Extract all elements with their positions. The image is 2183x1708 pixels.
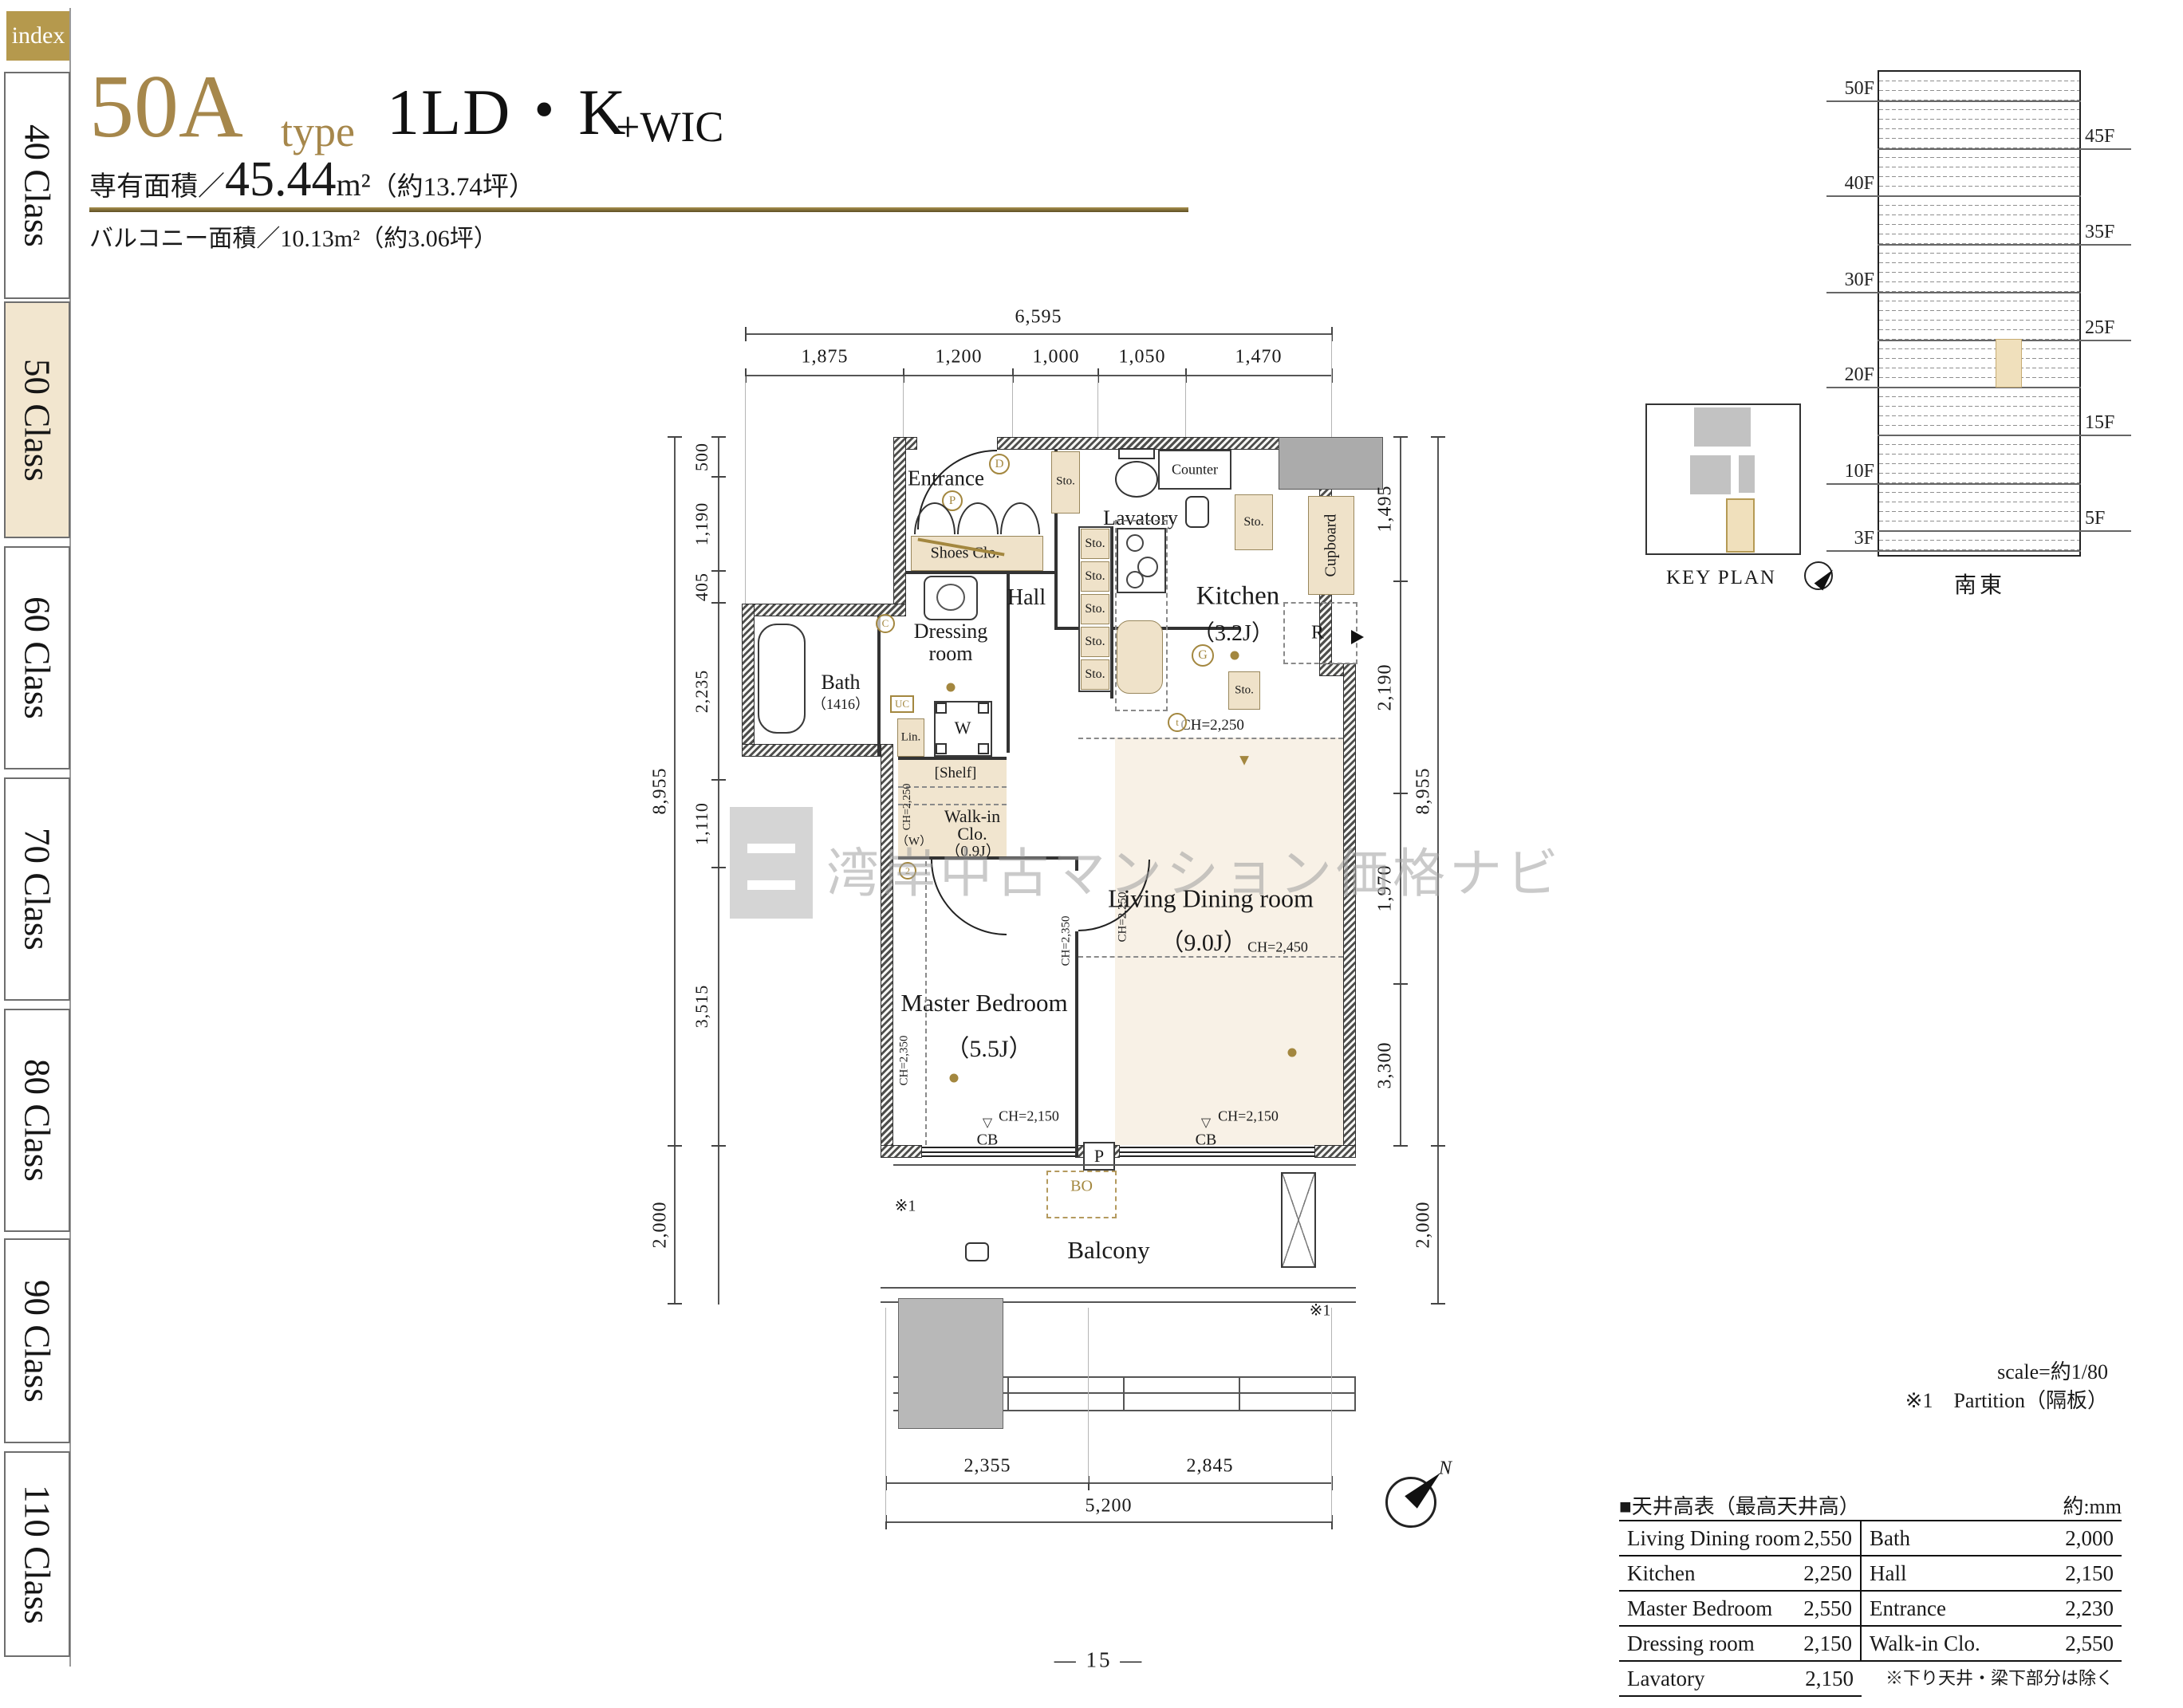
ch-2150-right: CH=2,150 [1218, 1108, 1279, 1125]
dim-left-inner-line [718, 437, 719, 1305]
dim-bottom-1: 2,355 [964, 1456, 1011, 1478]
partition-bedroom-living [1075, 931, 1078, 1158]
dim-left-outer-line [674, 437, 676, 1305]
room-size-wic: （0.9J） [945, 840, 1000, 861]
symbol-2-circle-a: 2 [899, 862, 916, 880]
dim-bottom-seg-line [886, 1482, 1332, 1484]
table-row-1: Living Dining room2,550 Bath2,000 [1619, 1520, 2122, 1555]
bedroom-dot [950, 1074, 959, 1083]
hall-sto-5-label: Sto. [1085, 667, 1105, 682]
cb-label-right: CB [1196, 1131, 1217, 1150]
room-label-balcony: Balcony [1067, 1236, 1149, 1265]
cupboard-label: Cupboard [1322, 514, 1341, 577]
cb-label-left: CB [977, 1131, 999, 1150]
living-vent-triangle: ▼ [1236, 752, 1252, 770]
partition-mark-left: ※1 [895, 1196, 916, 1216]
wic-ch-label: CH=2,250 [901, 784, 914, 831]
room-size-living: （9.0J） [1160, 923, 1247, 958]
window-living [1120, 1147, 1314, 1157]
balcony-sill [893, 1164, 1356, 1166]
symbol-c-circle: C [876, 614, 895, 633]
room-label-bath: Bath [821, 671, 860, 695]
washer-pan-corner-4 [978, 743, 989, 754]
bedroom-ch-right: CH=2,350 [1060, 915, 1074, 966]
partition-note: ※1 Partition（隔板） [1905, 1384, 2108, 1414]
toilet [1115, 461, 1158, 498]
linen-label: Lin. [901, 731, 921, 745]
washstand-basin [936, 584, 965, 611]
partition-mark-right: ※1 [1310, 1301, 1331, 1320]
cb-triangle-left: ▽ [983, 1115, 992, 1131]
living-dot [1288, 1049, 1297, 1057]
ceiling-height-table: ■天井高表（最高天井高） 約:mm Living Dining room2,55… [1619, 1494, 2122, 1697]
bedroom-closet-dashed [925, 861, 927, 1145]
floor-plan: Entrance P D Shoes Clo. Lavatory Sto. Co… [0, 0, 2183, 1708]
dim-right-2: 2,190 [1375, 664, 1397, 711]
washer-label: W [955, 718, 971, 738]
living-ch-top: CH=2,250 [1177, 717, 1247, 734]
dim-bottom-total: 5,200 [1086, 1496, 1133, 1517]
room-label-kitchen: Kitchen [1196, 582, 1279, 612]
symbol-g-circle: G [1192, 644, 1214, 667]
closet-door-arc-3 [1000, 502, 1040, 534]
stove-burner-3 [1126, 571, 1144, 588]
dim-top-seg-line [746, 375, 1332, 376]
washer-pan-corner-2 [978, 702, 989, 714]
room-size-kitchen: （3.2J） [1192, 616, 1274, 647]
balcony-drain [965, 1242, 989, 1261]
pipe-shaft [1279, 437, 1383, 490]
wall-bath-left [742, 604, 755, 757]
washer-pan-corner-3 [936, 743, 947, 754]
wall-west [881, 744, 893, 1158]
room-size-bath: （1416） [812, 693, 869, 714]
dim-left-2: 1,190 [692, 502, 712, 546]
dim-left-5: 1,110 [692, 802, 712, 845]
table-row-5: Lavatory2,150 ※下り天井・梁下部分は除く [1619, 1660, 2122, 1697]
dim-bottom-total-line [886, 1521, 1332, 1523]
bedroom-ch-left: CH=2,350 [898, 1035, 912, 1085]
wic-shelf-line-2 [898, 804, 1007, 805]
dim-bottom-2: 2,845 [1187, 1456, 1234, 1478]
dim-top-total: 6,595 [1015, 307, 1062, 329]
wic-w-label: （W） [896, 832, 932, 849]
living-ch-2450: CH=2,450 [1247, 939, 1308, 956]
lavatory-basin [1185, 496, 1209, 528]
dim-right-4: 3,300 [1375, 1042, 1397, 1089]
vent-arrow [1351, 630, 1364, 644]
wall-east [1343, 663, 1356, 1158]
wic-shelf-label: [Shelf] [935, 765, 977, 782]
kitchen-storage-label: Sto. [1235, 684, 1254, 698]
dim-right-outer-2: 2,000 [1413, 1202, 1435, 1249]
brochure-page: { "sidebar": { "index": "index", "tabs":… [0, 0, 2183, 1708]
uc-label: UC [895, 698, 909, 710]
bathtub [758, 624, 806, 734]
living-inner-dashed [1078, 956, 1343, 958]
dim-left-outer-1: 8,955 [650, 768, 672, 815]
dim-top-3: 1,000 [1033, 347, 1080, 368]
dim-top-2: 1,200 [936, 347, 983, 368]
balcony-gray-block [898, 1298, 1003, 1429]
table-row-4: Dressing room2,150 Walk-in Clo.2,550 [1619, 1625, 2122, 1660]
table-row-3: Master Bedroom2,550 Entrance2,230 [1619, 1590, 2122, 1625]
compass-n-label: N [1439, 1458, 1452, 1480]
room-label-dressing-1: Dressing [914, 620, 987, 643]
room-size-bedroom: （5.5J） [945, 1029, 1032, 1064]
table-title: ■天井高表（最高天井高） [1619, 1494, 1860, 1520]
room-label-dressing-2: room [929, 642, 973, 666]
dim-left-outer-2: 2,000 [650, 1202, 672, 1249]
dressing-dot [947, 683, 956, 692]
stove-burner-1 [1126, 534, 1144, 552]
balcony-slab-line-1 [881, 1287, 1356, 1289]
table-footnote: ※下り天井・梁下部分は除く [1885, 1662, 2114, 1697]
washer-pan-corner-1 [936, 702, 947, 714]
dim-left-6: 3,515 [692, 985, 712, 1029]
bo-label: BO [1070, 1178, 1093, 1196]
cb-triangle-right: ▽ [1201, 1115, 1211, 1131]
lavatory-storage-a-label: Sto. [1056, 475, 1075, 489]
wall-bath-bottom [742, 744, 893, 757]
dim-left-1: 500 [692, 443, 712, 471]
living-top-dashed [1078, 738, 1343, 739]
hall-sto-3-label: Sto. [1085, 602, 1105, 616]
room-label-hall: Hall [1007, 585, 1046, 611]
fridge-label: R [1311, 623, 1324, 644]
lavatory-storage-b-label: Sto. [1243, 515, 1263, 529]
symbol-t-circle: t [1168, 713, 1187, 732]
kitchen-sink [1117, 620, 1163, 694]
wall-bottom-left [881, 1145, 922, 1158]
ch-2150-left: CH=2,150 [999, 1108, 1059, 1125]
hall-sto-2-label: Sto. [1085, 569, 1105, 584]
table-unit: 約:mm [2063, 1494, 2122, 1520]
wall-entrance-left [893, 437, 906, 616]
wic-shelf-line-1 [898, 786, 1007, 788]
dim-top-total-line [746, 333, 1332, 335]
dim-right-1: 1,495 [1375, 486, 1397, 533]
partition-bath-east [877, 616, 881, 757]
dim-top-5: 1,470 [1235, 347, 1283, 368]
counter-label: Counter [1172, 462, 1218, 478]
bedroom-door-arc [931, 860, 1007, 935]
toilet-tank [1118, 448, 1155, 459]
table-row-2: Kitchen2,250 Hall2,150 [1619, 1555, 2122, 1590]
page-number: — 15 — [1054, 1648, 1145, 1673]
wall-bottom-right [1314, 1145, 1356, 1158]
window-bedroom [922, 1147, 1077, 1157]
dim-left-4: 2,235 [692, 670, 712, 714]
dim-right-inner-line [1400, 437, 1401, 1146]
kitchen-dot [1231, 651, 1239, 660]
balcony-hatch-panel [1281, 1172, 1316, 1268]
dim-top-4: 1,050 [1119, 347, 1166, 368]
dim-right-3: 1,970 [1375, 865, 1397, 912]
dim-right-outer-line [1437, 437, 1439, 1305]
dim-right-outer-1: 8,955 [1413, 768, 1435, 815]
hall-sto-1-label: Sto. [1085, 537, 1105, 551]
partition-hall-south [1007, 856, 1078, 860]
hall-sto-4-label: Sto. [1085, 635, 1105, 649]
scale-note: scale=約1/80 [1997, 1356, 2108, 1385]
partition-shoes-south [906, 571, 1054, 574]
dim-top-1: 1,875 [802, 347, 849, 368]
dim-left-3: 405 [692, 573, 712, 601]
